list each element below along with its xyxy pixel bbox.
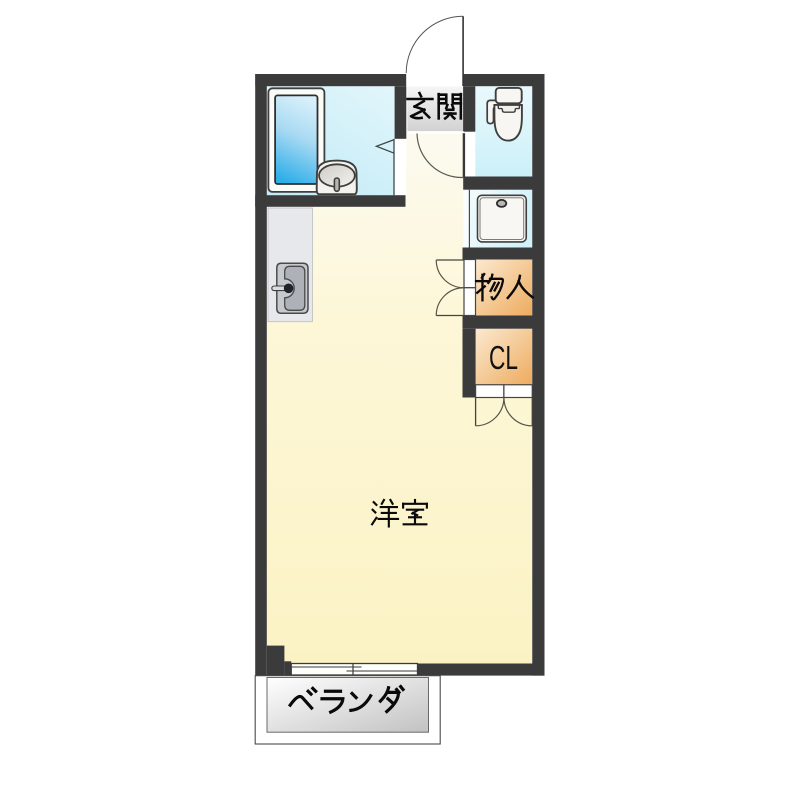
svg-text:CL: CL <box>489 339 518 376</box>
